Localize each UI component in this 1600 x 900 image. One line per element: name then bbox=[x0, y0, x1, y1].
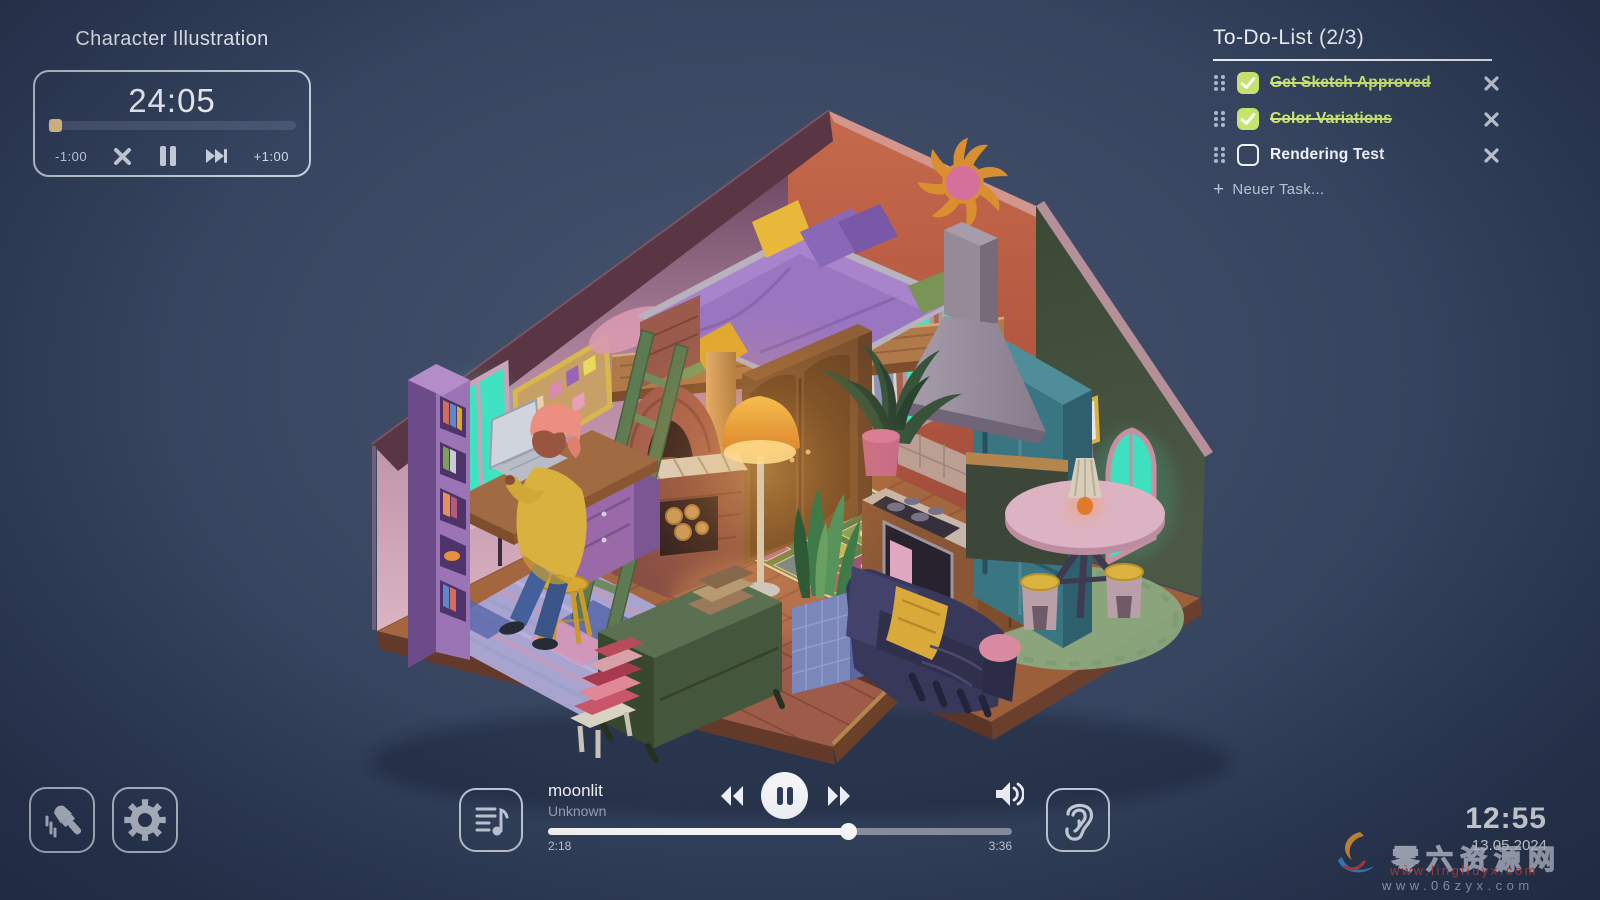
check-icon bbox=[1240, 76, 1256, 90]
todo-title: To-Do-List (2/3) bbox=[1213, 26, 1499, 50]
todo-delete-button[interactable] bbox=[1484, 148, 1499, 163]
fast-forward-icon bbox=[826, 784, 852, 808]
fast-forward-button[interactable] bbox=[826, 784, 852, 808]
drag-handle-icon[interactable] bbox=[1213, 110, 1226, 128]
pause-icon bbox=[776, 786, 794, 806]
song-progress-thumb[interactable] bbox=[840, 823, 857, 840]
todo-divider bbox=[1213, 59, 1492, 61]
playlist-music-icon bbox=[471, 800, 511, 840]
skip-forward-icon bbox=[204, 147, 228, 165]
todo-add-task-button[interactable]: + Neuer Task... bbox=[1213, 181, 1499, 198]
todo-checkbox-unchecked[interactable] bbox=[1237, 144, 1259, 166]
clock-time: 12:55 bbox=[1465, 802, 1547, 836]
todo-task-label: Rendering Test bbox=[1270, 146, 1384, 164]
drag-handle-icon[interactable] bbox=[1213, 74, 1226, 92]
rewind-button[interactable] bbox=[719, 784, 745, 808]
todo-task-label: Get Sketch Approved bbox=[1270, 74, 1431, 92]
todo-panel: To-Do-List (2/3) Get Sketch Approved Col… bbox=[1213, 26, 1499, 198]
timer-minus-button[interactable]: -1:00 bbox=[55, 149, 87, 164]
todo-row-1: Get Sketch Approved bbox=[1213, 65, 1499, 101]
timer-progress-knob[interactable] bbox=[49, 119, 62, 132]
song-total: 3:36 bbox=[989, 839, 1012, 853]
todo-row-2: Color Variations bbox=[1213, 101, 1499, 137]
todo-checkbox-checked[interactable] bbox=[1237, 72, 1259, 94]
timer-cancel-button[interactable] bbox=[113, 147, 132, 166]
song-progress-fill bbox=[548, 828, 848, 835]
track-title: moonlit bbox=[548, 781, 603, 801]
drag-handle-icon[interactable] bbox=[1213, 146, 1226, 164]
focus-task-title: Character Illustration bbox=[33, 28, 311, 51]
plus-icon: + bbox=[1213, 183, 1224, 197]
watermark-url-gray: www.06zyx.com bbox=[1382, 878, 1534, 893]
pause-icon bbox=[158, 145, 178, 167]
todo-delete-button[interactable] bbox=[1484, 112, 1499, 127]
todo-row-3: Rendering Test bbox=[1213, 137, 1499, 173]
theme-brush-button[interactable] bbox=[29, 787, 95, 853]
timer-remaining: 24:05 bbox=[35, 82, 309, 120]
timer-plus-button[interactable]: +1:00 bbox=[254, 149, 289, 164]
timer-progress-track[interactable] bbox=[48, 121, 296, 130]
timer-skip-button[interactable] bbox=[204, 147, 228, 165]
todo-delete-button[interactable] bbox=[1484, 76, 1499, 91]
gear-icon bbox=[122, 797, 168, 843]
watermark-logo bbox=[1328, 826, 1384, 884]
ear-icon bbox=[1058, 798, 1098, 842]
watermark-url-red: www.lingliuyx.com bbox=[1390, 863, 1538, 878]
timer-pause-button[interactable] bbox=[158, 145, 178, 167]
song-progress-track[interactable] bbox=[548, 828, 1012, 835]
play-pause-button[interactable] bbox=[761, 772, 808, 819]
todo-checkbox-checked[interactable] bbox=[1237, 108, 1259, 130]
playlist-button[interactable] bbox=[459, 788, 523, 852]
cancel-icon bbox=[113, 147, 132, 166]
volume-icon bbox=[994, 780, 1024, 808]
paintbrush-icon bbox=[41, 799, 83, 841]
todo-task-label: Color Variations bbox=[1270, 110, 1392, 128]
check-icon bbox=[1240, 112, 1256, 126]
song-elapsed: 2:18 bbox=[548, 839, 571, 853]
rewind-icon bbox=[719, 784, 745, 808]
volume-button[interactable] bbox=[994, 780, 1024, 808]
todo-count: (2/3) bbox=[1319, 26, 1364, 49]
settings-button[interactable] bbox=[112, 787, 178, 853]
focus-timer-panel: 24:05 -1:00 +1:00 bbox=[33, 70, 311, 177]
app-root: { "focus_timer": { "title": "Character I… bbox=[0, 0, 1600, 900]
bookshelf bbox=[408, 364, 470, 668]
ambient-sound-button[interactable] bbox=[1046, 788, 1110, 852]
track-artist: Unknown bbox=[548, 803, 606, 819]
